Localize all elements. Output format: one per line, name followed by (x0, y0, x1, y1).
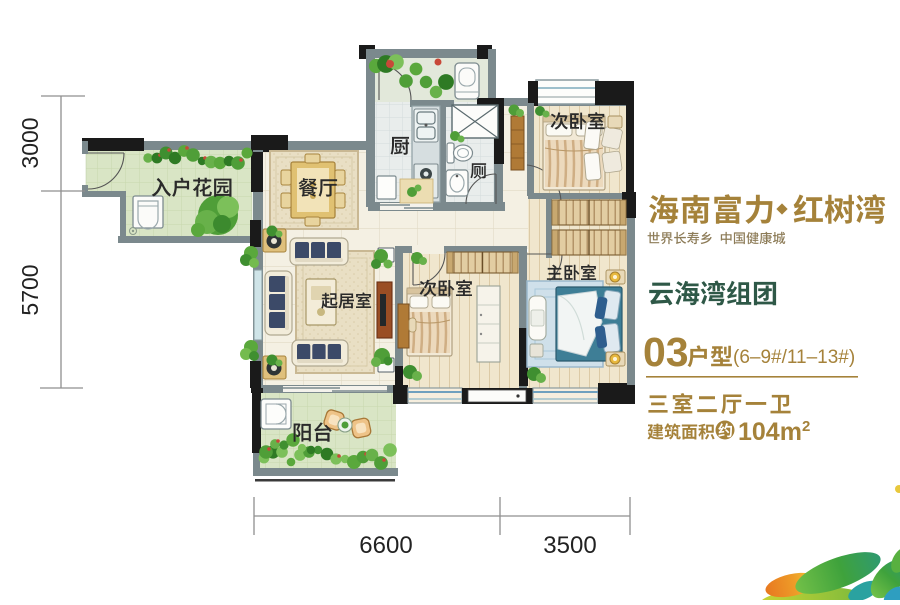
svg-text:(6–9#/11–13#): (6–9#/11–13#) (733, 347, 855, 368)
svg-text:6600: 6600 (359, 532, 412, 559)
svg-text:104m2: 104m2 (738, 418, 810, 446)
svg-text:3500: 3500 (543, 532, 596, 559)
svg-text:03: 03 (643, 329, 689, 375)
svg-text:5700: 5700 (17, 264, 43, 315)
svg-text:3000: 3000 (17, 117, 43, 168)
